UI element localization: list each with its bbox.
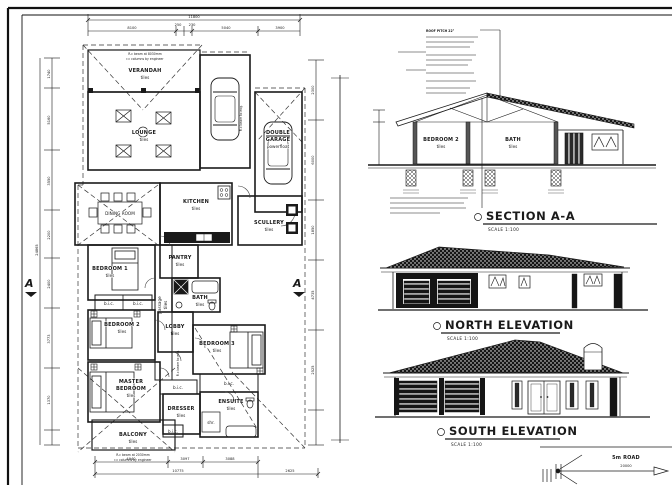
dim-left-4: 2400: [47, 279, 51, 289]
dim-right-1: 6000: [311, 155, 315, 165]
dim-left-0: 1740: [47, 69, 51, 79]
north-windows: [489, 274, 622, 308]
section-marker-left-letter: A: [24, 277, 34, 290]
bic-label-2: b.i.c.: [133, 301, 143, 306]
road-callout: 5m ROAD 20000: [540, 447, 672, 484]
dim-bottom-total-1: 2625: [285, 469, 294, 473]
section-room-bedroom: BEDROOM 2: [423, 137, 459, 143]
road-dim: 20000: [620, 464, 632, 468]
north-scale: SCALE 1:100: [447, 336, 478, 341]
room-label-master-2: BEDROOM: [116, 386, 146, 392]
roof-pitch-title: ROOF PITCH 22°: [426, 29, 455, 33]
room-finish-bedroom3: tiles: [213, 348, 222, 353]
section-marker-right: A: [292, 277, 305, 297]
section-foundation-notes: [390, 198, 468, 213]
room-finish-scullery: tiles: [265, 227, 274, 232]
section-title-block: SECTION A-A SCALE 1:100: [475, 209, 658, 232]
room-finish-lobby: tiles: [171, 331, 180, 336]
room-label-pantry: PANTRY: [168, 255, 191, 261]
beam-note-top-2: r.c columns by engineer: [126, 57, 164, 61]
room-label-lobby: LOBBY: [165, 324, 184, 330]
plan-dims-top: 11800 8100 250 230 5040 3900: [86, 14, 302, 36]
plan-walls: [75, 50, 302, 450]
room-label-bedroom2: BEDROOM 2: [104, 322, 140, 328]
room-label-bedroom3: BEDROOM 3: [199, 341, 235, 347]
north-title: NORTH ELEVATION: [445, 318, 574, 332]
south-scale: SCALE 1:100: [451, 442, 482, 447]
plan-dims-right: 2300 6000 1850 4735 2525: [308, 60, 324, 445]
dim-left-6: 1370: [47, 395, 51, 405]
section-scale: SCALE 1:100: [488, 227, 519, 232]
south-elevation: SOUTH ELEVATION SCALE 1:100: [375, 340, 650, 447]
dim-bottom-total-0: 10775: [172, 469, 183, 473]
dim-top-3: 5040: [221, 26, 231, 30]
dim-right-3: 4735: [311, 290, 315, 299]
room-label-kitchen: KITCHEN: [183, 199, 209, 205]
room-label-balcony: BALCONY: [119, 432, 147, 438]
plan-dims-bottom: 4940 3097 3088 10775 2625: [93, 456, 320, 478]
room-finish-balcony: tiles: [129, 439, 138, 444]
dim-top-4: 3900: [275, 26, 285, 30]
room-label-dresser: DRESSER: [167, 406, 194, 412]
dim-left-total: 24865: [35, 244, 39, 255]
roof-pitch-notes: ROOF PITCH 22°: [398, 29, 500, 96]
room-finish-master: tiles: [127, 393, 136, 398]
kitchen-fittings: [164, 186, 298, 243]
dim-bottom-2: 3088: [225, 457, 235, 461]
section-room-bath: BATH: [505, 137, 521, 143]
dim-left-1: 5160: [47, 115, 51, 125]
room-label-dining: DINING ROOM: [105, 211, 135, 216]
room-finish-passage: tiles: [163, 301, 168, 310]
dim-left-3: 2200: [47, 230, 51, 240]
bic-label-1: b.i.c.: [104, 301, 114, 306]
room-label-bedroom1: BEDROOM 1: [92, 266, 128, 272]
room-finish-garage: powerfloat: [267, 144, 290, 149]
section-walls: [413, 122, 623, 164]
section-beyond: [565, 133, 618, 164]
room-finish-verandah: tiles: [141, 75, 150, 80]
dim-left-2: 3550: [47, 176, 51, 186]
room-finish-pantry: tiles: [176, 262, 185, 267]
room-label-verandah: VERANDAH: [129, 68, 162, 74]
section-marker-right-letter: A: [292, 277, 302, 290]
north-porch: [396, 273, 478, 308]
architectural-drawing: VERANDAH tiles LOUNGE tiles DINING ROOM …: [0, 0, 672, 485]
dim-bottom-0: 4940: [126, 457, 136, 461]
beam-note-side-1: R.c beam to eng.: [239, 105, 243, 131]
road-label: 5m ROAD: [612, 455, 640, 461]
room-finish-lounge: tiles: [140, 137, 149, 142]
room-label-garage-2: GARAGE: [266, 137, 291, 143]
dim-top-total: 11800: [188, 15, 200, 19]
bic-label-5: b.i.c.: [168, 429, 178, 434]
room-finish-kitchen: tiles: [192, 206, 201, 211]
room-label-master-1: MASTER: [119, 379, 143, 385]
beam-note-top-1: R.c beam at 8030mm: [128, 52, 161, 56]
room-finish-dresser: tiles: [177, 413, 186, 418]
shr-label: shr.: [207, 420, 215, 425]
south-doors-windows: [512, 378, 617, 416]
room-label-ensuite: ENSUITE: [218, 399, 244, 405]
room-label-passage: passage: [157, 296, 162, 314]
south-title: SOUTH ELEVATION: [449, 424, 578, 438]
dim-top-0: 8100: [127, 26, 137, 30]
dim-bottom-1: 3097: [180, 457, 189, 461]
section-roof: [396, 93, 634, 128]
dim-left-5: 3773: [47, 334, 51, 343]
section-room-bath-finish: tiles: [509, 144, 518, 149]
drawing-sheet: VERANDAH tiles LOUNGE tiles DINING ROOM …: [0, 0, 672, 485]
room-finish-bath: tiles: [196, 302, 205, 307]
section-room-bedroom-finish: tiles: [437, 144, 446, 149]
dim-right-2: 1850: [311, 225, 315, 235]
room-label-lounge: LOUNGE: [132, 130, 157, 136]
bic-label-3: b.i.c.: [173, 385, 183, 390]
room-label-garage-1: DOUBLE: [266, 130, 290, 136]
chimney: [584, 344, 602, 371]
floor-plan: VERANDAH tiles LOUNGE tiles DINING ROOM …: [24, 14, 324, 478]
room-finish-bedroom2: tiles: [118, 329, 127, 334]
bic-label-4: b.i.c.: [224, 381, 234, 386]
section-title: SECTION A-A: [486, 209, 575, 223]
room-finish-bedroom1: tiles: [106, 273, 115, 278]
room-label-scullery: SCULLERY: [254, 220, 284, 226]
south-garage-doors: [394, 378, 485, 415]
beam-note-side-2: R.c beam to eng.: [176, 350, 180, 376]
dim-top-1: 250: [175, 23, 183, 27]
north-elevation: NORTH ELEVATION SCALE 1:100: [378, 247, 648, 341]
north-title-block: NORTH ELEVATION SCALE 1:100: [434, 318, 574, 341]
section-aa: ROOF PITCH 22°: [331, 29, 657, 443]
dim-right-4: 2525: [311, 365, 315, 374]
dim-top-2: 230: [189, 23, 197, 27]
section-marker-left: A: [24, 277, 37, 297]
room-finish-ensuite: tiles: [227, 406, 236, 411]
dim-right-0: 2300: [311, 85, 315, 95]
plan-dims-left: 1740 5160 3550 2200 2400 3773 1370 24865: [35, 58, 60, 445]
south-title-block: SOUTH ELEVATION SCALE 1:100: [438, 424, 578, 447]
room-label-bath: BATH: [192, 295, 208, 301]
